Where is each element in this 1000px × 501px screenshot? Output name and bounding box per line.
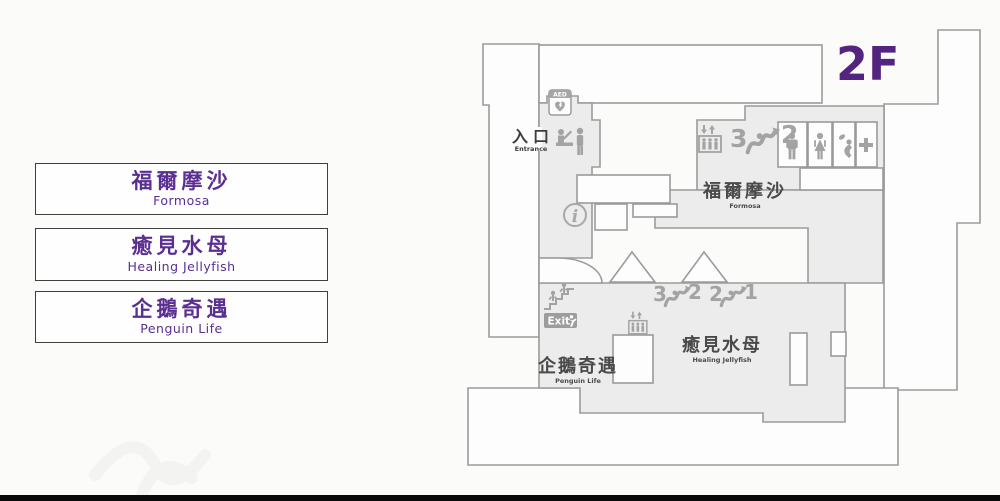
area-label-jellyfish: 癒見水母 Healing Jellyfish (682, 334, 762, 364)
info-glyph: i (572, 207, 578, 227)
exit-badge: Exit (544, 313, 577, 328)
video-letterbox-bar (0, 495, 1000, 501)
svg-text:2: 2 (688, 280, 702, 304)
corridor-curve-notch (539, 258, 602, 283)
map-outline-left-strip (483, 44, 539, 337)
map-outline-top-hall (539, 45, 822, 103)
floor-label: 2F (836, 37, 899, 91)
penguin-zh: 企鵝奇遇 (537, 355, 618, 377)
room-penguin (613, 335, 653, 383)
room-small-a (595, 204, 627, 230)
zigzag-triangle-2 (682, 252, 727, 282)
room-small-b (633, 204, 677, 217)
jellyfish-notch (831, 332, 846, 356)
jellyfish-en: Healing Jellyfish (692, 356, 751, 364)
jellyfish-channel (790, 333, 807, 385)
aed-icon: AED (549, 90, 571, 115)
aed-label: AED (553, 92, 567, 99)
room-under-restrooms (800, 168, 883, 190)
room-above-info (577, 175, 670, 203)
zigzag-triangle-1 (610, 252, 655, 282)
formosa-zh: 福爾摩沙 (702, 180, 787, 202)
penguin-en: Penguin Life (555, 377, 601, 385)
escalator-from: 3 (730, 124, 747, 153)
svg-text:1: 1 (744, 280, 758, 304)
floor-guide-screen: 福爾摩沙 Formosa 癒見水母 Healing Jellyfish 企鵝奇遇… (0, 0, 1000, 501)
stall-babycare (833, 122, 855, 167)
entrance-zh: 入口 (512, 127, 554, 146)
exit-label: Exit (548, 316, 571, 328)
jellyfish-zh: 癒見水母 (682, 334, 762, 356)
formosa-en: Formosa (729, 202, 760, 210)
floor-map: AED 入口 Entrance i 3 2 (0, 0, 1000, 501)
entrance-en: Entrance (515, 145, 548, 153)
area-formosa (655, 190, 883, 283)
watermark (95, 447, 205, 500)
